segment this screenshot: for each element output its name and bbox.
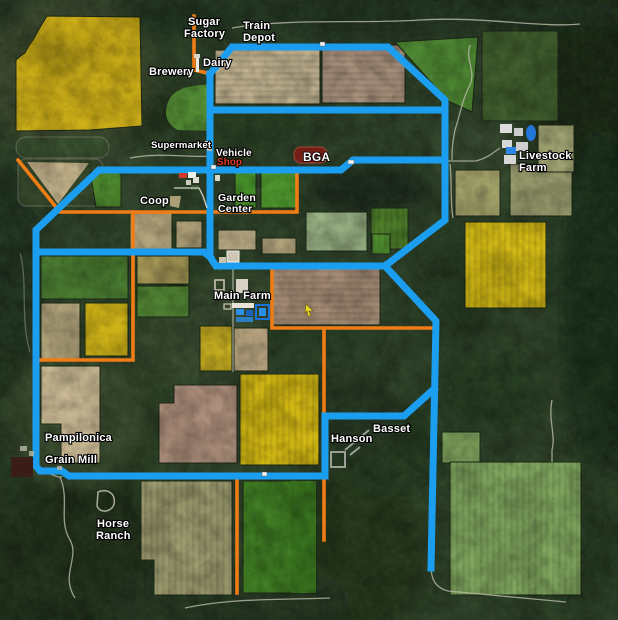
svg-text:Hanson: Hanson [331,433,373,445]
svg-text:Ranch: Ranch [96,530,131,542]
svg-text:Grain Mill: Grain Mill [45,454,97,466]
svg-text:Pampilonica: Pampilonica [45,432,113,444]
svg-text:Dairy: Dairy [203,57,232,69]
svg-text:Brewery: Brewery [149,66,194,78]
svg-text:Shop: Shop [217,157,242,168]
svg-text:Center: Center [218,203,252,215]
svg-text:Train: Train [243,20,270,32]
svg-text:Livestock: Livestock [519,150,572,162]
svg-text:Farm: Farm [519,162,547,174]
svg-text:Main Farm: Main Farm [214,290,271,302]
svg-text:Depot: Depot [243,32,275,44]
svg-text:Coop: Coop [140,195,169,207]
svg-text:Sugar: Sugar [188,16,221,28]
svg-text:BGA: BGA [303,150,330,164]
svg-text:Factory: Factory [184,28,226,40]
svg-text:Horse: Horse [97,518,129,530]
svg-text:Basset: Basset [373,423,410,435]
svg-text:Supermarket: Supermarket [151,140,212,151]
